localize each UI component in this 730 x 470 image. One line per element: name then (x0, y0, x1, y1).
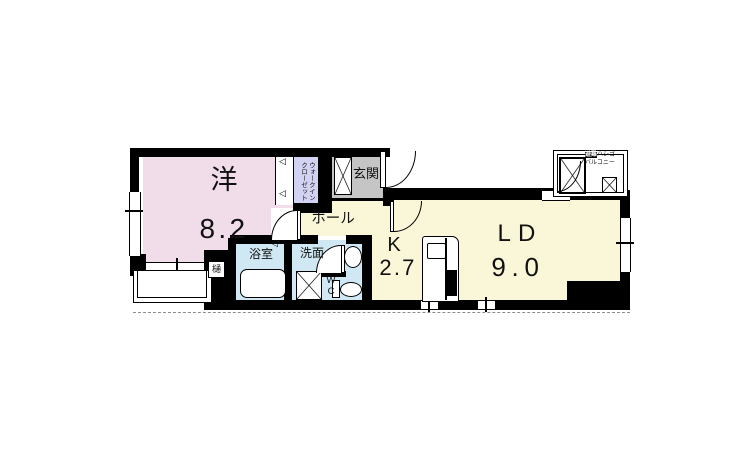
bathtub (240, 269, 286, 298)
floor-plan: 樋 ◁ ◁ ◁ 洋 8.2 ウォークイン クローゼット 玄関 ホール 浴室 洗面… (0, 0, 730, 470)
window-tick (616, 242, 634, 244)
washroom-door-leaf (341, 245, 345, 273)
kitchen-label: K (380, 234, 408, 256)
walk-in-closet-label: ウォークイン クローゼット (294, 158, 318, 204)
site-boundary-dashed-line (133, 312, 630, 313)
genkan-step-line (332, 198, 383, 201)
kitchen-size: 2.7 (372, 256, 424, 280)
living-dining-label: LD (490, 221, 550, 247)
washing-machine-pan (296, 271, 322, 300)
gutter-label: 樋 (212, 265, 221, 275)
stove (446, 270, 457, 296)
kitchen-sink (427, 243, 446, 259)
hall-kitchen-door-leaf (390, 201, 394, 232)
escape-label-rest: ハシゴ (597, 152, 615, 158)
wc-label-c: C (324, 286, 338, 297)
wic-label-line1: ウォークイン (307, 158, 314, 204)
washroom-label: 洗面 (292, 247, 332, 260)
closet-door-arrow-icon: ◁ (279, 189, 286, 198)
wall-segment (318, 148, 332, 213)
balcony-note-line2: バルコニー (585, 160, 627, 168)
genkan-label: 玄関 (348, 167, 384, 181)
wic-label-line2: クローゼット (299, 158, 306, 204)
wc-label: W C (324, 275, 338, 298)
hatch-marker-box (602, 177, 617, 193)
balcony-southwest-inner (137, 270, 207, 298)
bathroom-label: 浴室 (238, 248, 284, 261)
vent-tick (485, 297, 487, 312)
closet-door-arrow-icon: ◁ (279, 157, 286, 166)
entrance-door-arc (386, 151, 416, 188)
escape-label-em: 避難 (585, 152, 597, 158)
living-dining-size: 9.0 (486, 253, 550, 282)
western-room-label: 洋 (194, 166, 254, 196)
gutter-box: 樋 (208, 261, 225, 278)
wc-label-w: W (324, 275, 338, 286)
window-east-wall (620, 218, 631, 272)
wall-segment (567, 281, 620, 302)
toilet-bowl (340, 282, 362, 297)
western-room-door-leaf (297, 210, 301, 240)
western-room-size: 8.2 (184, 214, 264, 245)
hall-label: ホール (302, 212, 364, 228)
balcony-note-line1: 避難ハシゴ (585, 152, 627, 160)
wall-segment (130, 148, 139, 194)
window-west-wall (129, 192, 141, 256)
balcony-note: 避難ハシゴ バルコニー (585, 152, 627, 168)
wall-segment (362, 235, 372, 302)
wall-segment (130, 148, 390, 157)
wash-basin (344, 246, 362, 268)
window-tick (125, 210, 143, 212)
